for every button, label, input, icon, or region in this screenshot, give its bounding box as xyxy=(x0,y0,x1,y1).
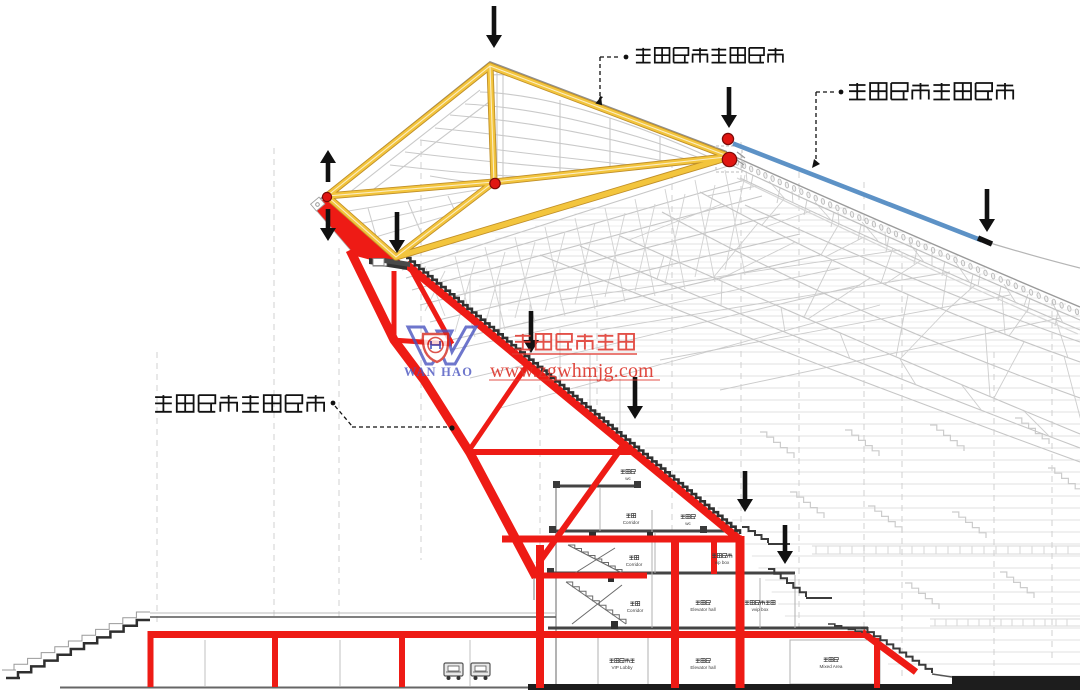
svg-text:Corridor: Corridor xyxy=(626,562,643,567)
svg-text:WAN HAO: WAN HAO xyxy=(404,365,473,379)
svg-text:wc: wc xyxy=(685,521,691,526)
svg-text:Corridor: Corridor xyxy=(623,520,640,525)
svg-text:Mixed Area: Mixed Area xyxy=(820,664,843,669)
svg-text:www.zgwhmjg.com: www.zgwhmjg.com xyxy=(490,360,654,382)
svg-text:Elevator hall: Elevator hall xyxy=(690,665,715,670)
svg-text:vvip box: vvip box xyxy=(752,607,770,612)
svg-text:VIP Lobby: VIP Lobby xyxy=(611,665,633,670)
svg-text:wc: wc xyxy=(625,476,631,481)
svg-text:vip box: vip box xyxy=(715,560,730,565)
svg-text:Elevator hall: Elevator hall xyxy=(690,607,715,612)
svg-text:Corridor: Corridor xyxy=(627,608,644,613)
